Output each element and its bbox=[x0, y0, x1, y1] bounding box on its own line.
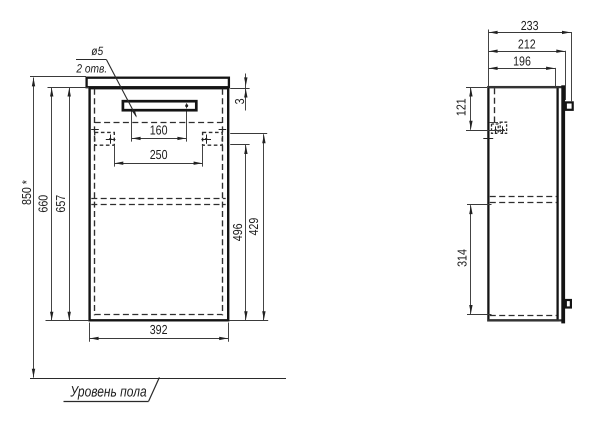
svg-text:160: 160 bbox=[150, 122, 168, 137]
svg-text:496: 496 bbox=[230, 223, 245, 241]
svg-text:429: 429 bbox=[246, 218, 261, 236]
svg-text:657: 657 bbox=[53, 195, 68, 213]
svg-text:ø5: ø5 bbox=[91, 44, 103, 58]
svg-text:850 *: 850 * bbox=[19, 180, 34, 205]
svg-text:121: 121 bbox=[453, 98, 468, 116]
svg-text:250: 250 bbox=[150, 147, 168, 162]
svg-text:660: 660 bbox=[35, 195, 50, 213]
svg-text:Уровень пола: Уровень пола bbox=[70, 383, 147, 400]
svg-text:212: 212 bbox=[518, 37, 536, 52]
svg-text:2 отв.: 2 отв. bbox=[76, 61, 108, 75]
svg-text:3: 3 bbox=[232, 98, 247, 104]
svg-text:392: 392 bbox=[150, 322, 168, 337]
svg-text:314: 314 bbox=[454, 249, 469, 267]
svg-text:196: 196 bbox=[513, 54, 531, 69]
svg-text:233: 233 bbox=[521, 18, 539, 33]
